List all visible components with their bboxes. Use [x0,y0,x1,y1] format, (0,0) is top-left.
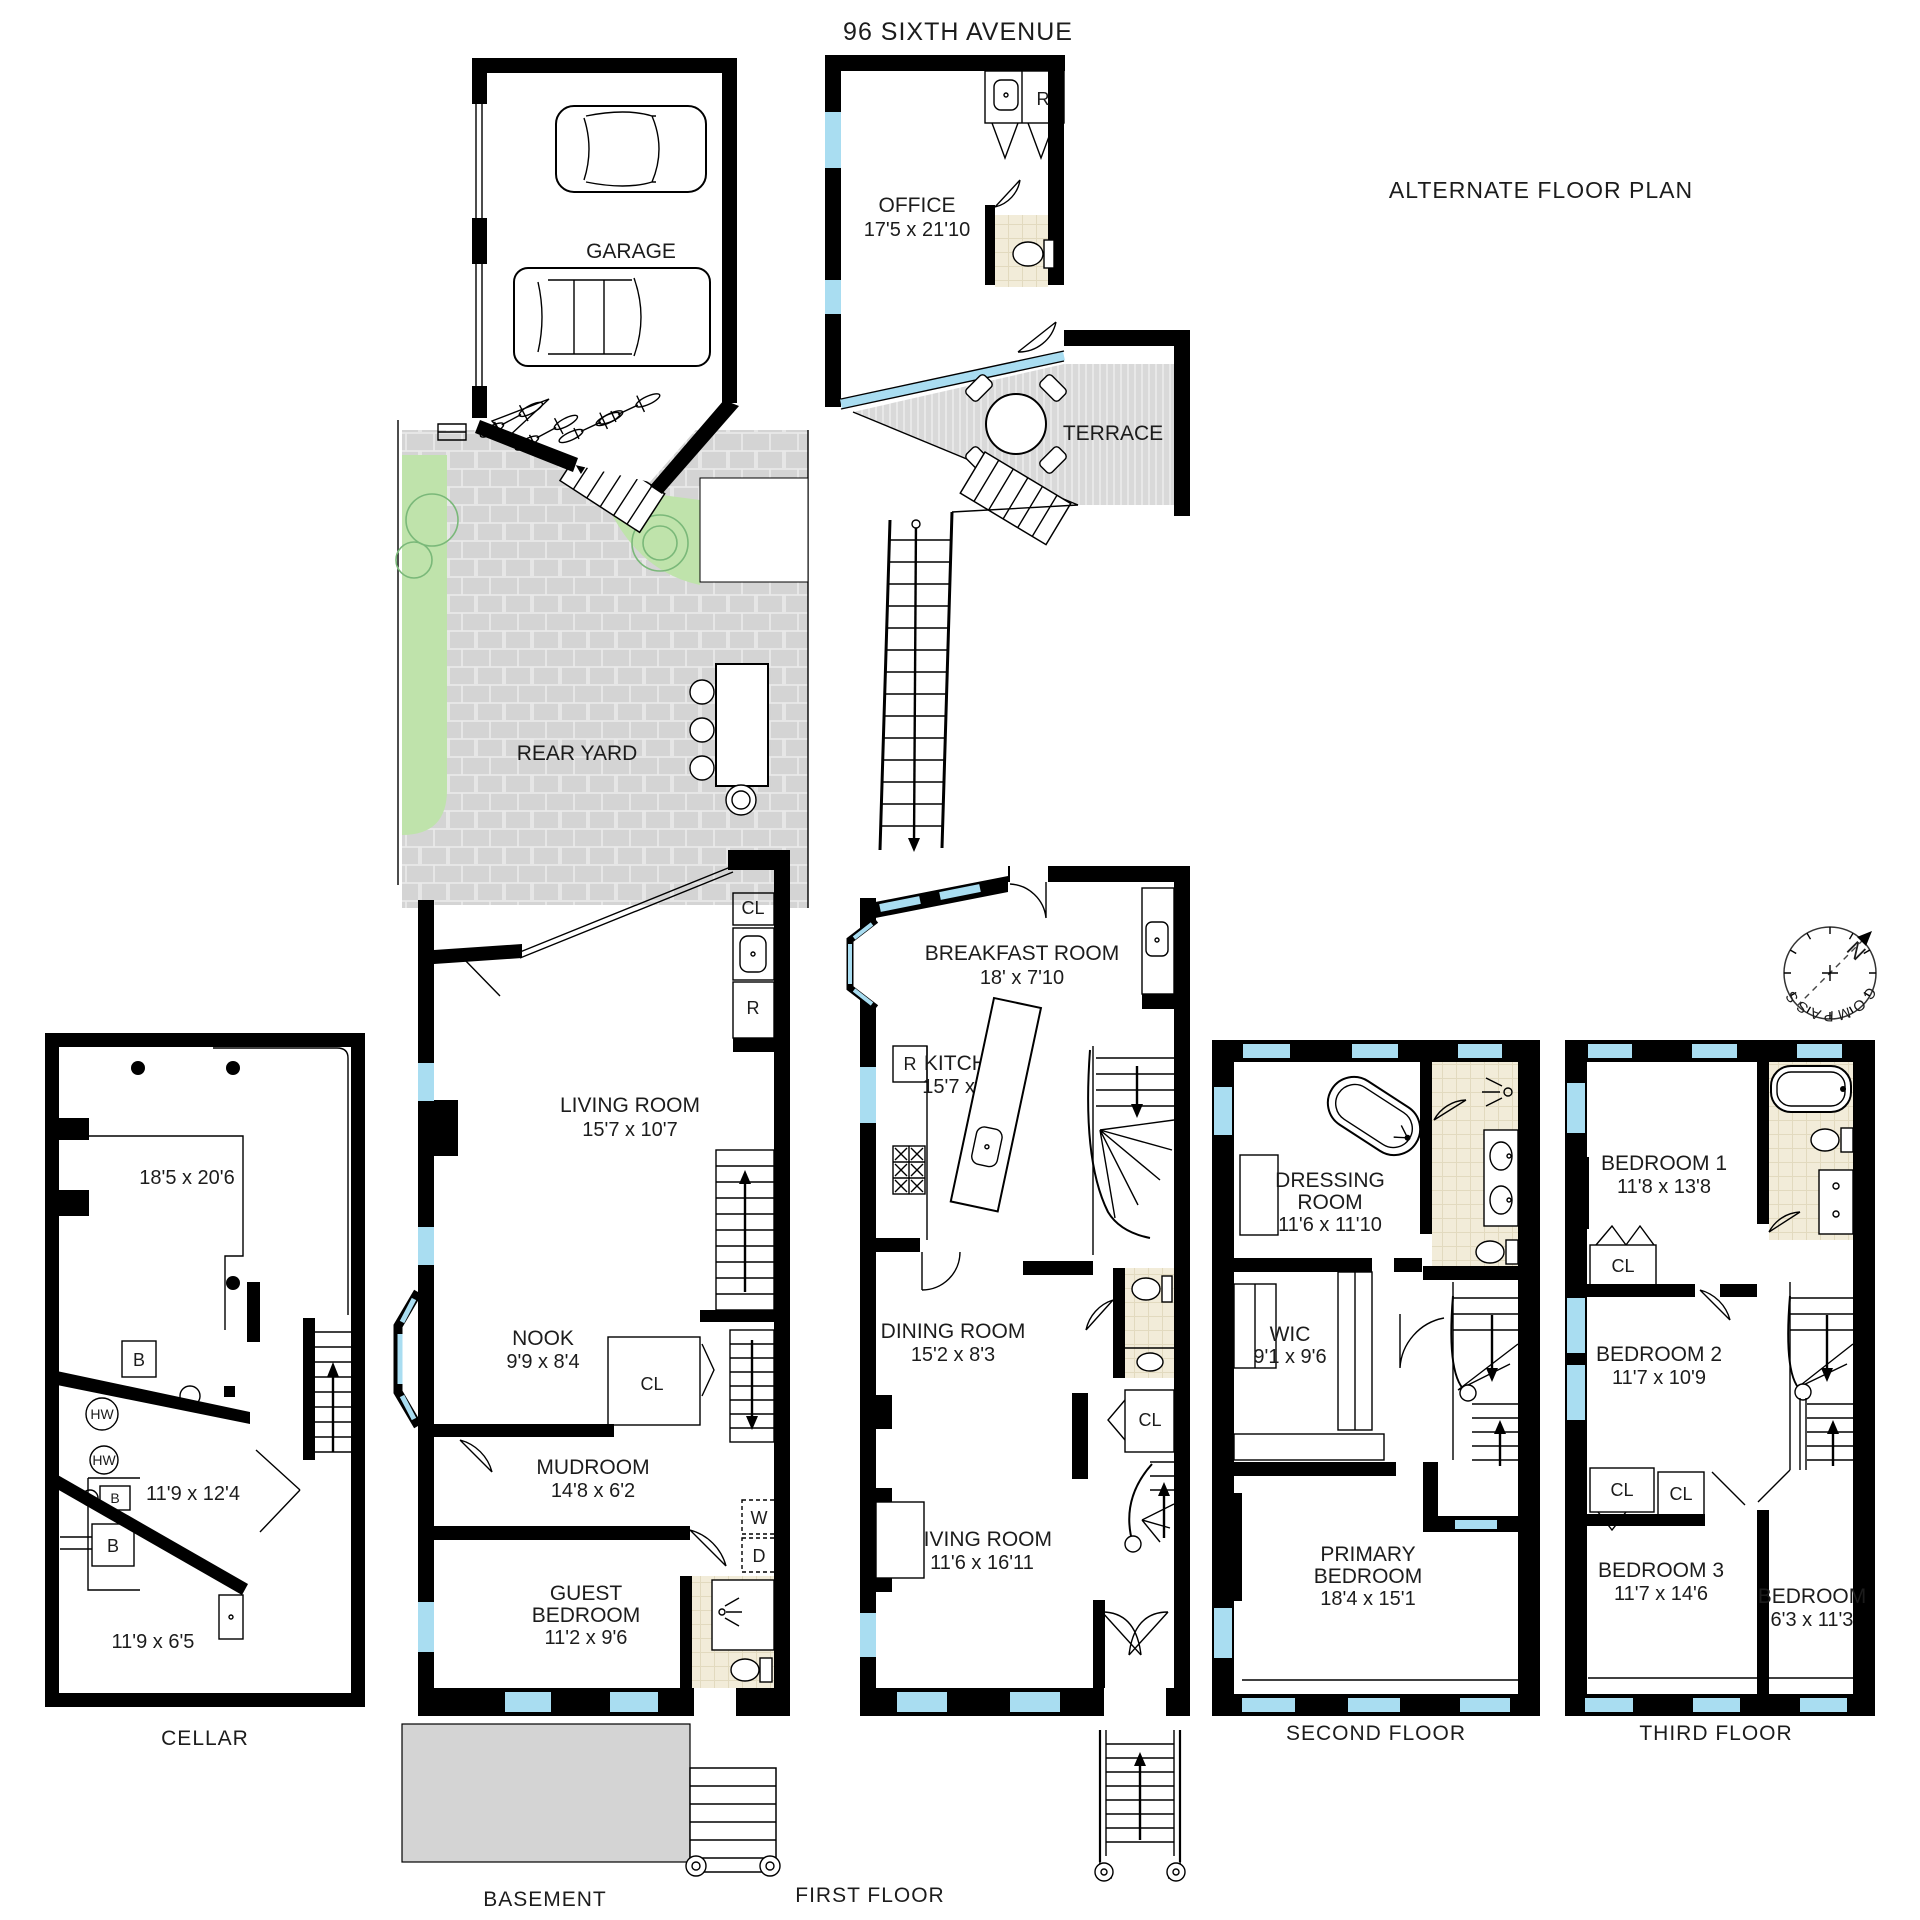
column-icon [226,1276,240,1290]
window [1455,1520,1497,1529]
toilet-icon [731,1658,772,1682]
door-opening [694,1688,736,1716]
window [610,1692,658,1712]
window [825,112,841,168]
dining-room-label: DINING ROOM [881,1320,1026,1343]
door-opening [690,1526,730,1540]
breakfast-room-label: BREAKFAST ROOM [925,942,1120,965]
washer-label: W [751,1508,768,1528]
closet-label: CL [1610,1480,1633,1500]
window [897,1692,947,1712]
window [1585,1698,1633,1712]
shower-icon [712,1580,774,1650]
rear-yard-label: REAR YARD [517,742,638,765]
window [1460,1698,1510,1712]
guest-bedroom-label: BEDROOM [532,1604,641,1627]
dresser-icon [1240,1155,1278,1235]
cellar-mid-dims: 11'9 x 12'4 [146,1483,240,1505]
window [1010,1692,1060,1712]
closet-label: CL [741,898,764,918]
column-icon [226,1061,240,1075]
third-floor-label: THIRD FLOOR [1639,1722,1792,1745]
window [1243,1044,1290,1058]
breakfast-room-dims: 18' x 7'10 [980,967,1064,989]
boiler-label: B [107,1536,119,1556]
plan-subtitle: ALTERNATE FLOOR PLAN [1389,177,1693,203]
dining-room-dims: 15'2 x 8'3 [911,1344,995,1366]
dressing-room-dims: 11'6 x 11'10 [1278,1214,1382,1236]
closet-label: CL [1669,1484,1692,1504]
cellar-storage-dims: 18'5 x 20'6 [139,1167,235,1189]
boiler-label: B [110,1490,119,1506]
sink-icon [994,80,1018,110]
window [860,1067,876,1123]
window [1797,1044,1842,1058]
refrigerator-label: R [1037,89,1050,109]
window [1588,1044,1632,1058]
door-opening [1104,1688,1166,1716]
column-icon [131,1061,145,1075]
toilet-icon [1013,240,1054,268]
second-floor-label: SECOND FLOOR [1286,1722,1466,1745]
window [505,1692,551,1712]
wic-dims: 9'1 x 9'6 [1253,1346,1326,1368]
hot-water-label: HW [90,1406,114,1422]
first-floor-label: FIRST FLOOR [795,1884,944,1907]
window [860,1613,876,1657]
bedroom2-dims: 11'7 x 10'9 [1612,1367,1706,1389]
guest-bedroom-label: GUEST [550,1582,623,1605]
office-label: OFFICE [879,194,956,217]
living-room-label: LIVING ROOM [912,1528,1052,1551]
primary-bedroom-label: BEDROOM [1314,1565,1423,1588]
wic-label: WIC [1270,1323,1311,1346]
window [1348,1698,1400,1712]
hot-water-label: HW [92,1452,116,1468]
window [1567,1083,1585,1133]
window [1800,1698,1847,1712]
bedroom4-label: BEDROOM [1758,1585,1867,1608]
door-opening [1010,866,1048,882]
basement-floor-label: BASEMENT [483,1888,607,1911]
bedroom1-dims: 11'8 x 13'8 [1617,1176,1711,1198]
window [418,1602,434,1652]
floor-plan-drawing: 96 SIXTH AVENUE ALTERNATE FLOOR PLAN N C… [0,0,1920,1920]
double-vanity-icon [1484,1130,1518,1226]
areaway [402,1724,690,1862]
bay-window [398,1292,418,1426]
window [1567,1365,1585,1420]
closet-label: CL [1138,1410,1161,1430]
cellar-front-dims: 11'9 x 6'5 [112,1631,195,1653]
refrigerator-label: R [747,998,760,1018]
bedroom3-dims: 11'7 x 14'6 [1614,1583,1708,1605]
living-room-label: LIVING ROOM [560,1094,700,1117]
living-room-dims: 15'7 x 10'7 [582,1119,678,1141]
compass-icon: N COMPASS [1781,927,1880,1024]
fireplace-icon [876,1488,924,1592]
dressing-room-label: ROOM [1297,1191,1362,1214]
window [1458,1044,1502,1058]
terrace-label: TERRACE [1063,422,1163,445]
cellar-floor-label: CELLAR [161,1727,249,1750]
yard-walkway [700,478,808,582]
office-dims: 17'5 x 21'10 [864,219,971,241]
primary-bedroom-label: PRIMARY [1320,1543,1415,1566]
toilet-icon [1811,1128,1853,1152]
bay-window [850,920,876,1008]
window [1692,1044,1737,1058]
mudroom-label: MUDROOM [536,1456,649,1479]
window [1242,1698,1295,1712]
window [1352,1044,1398,1058]
car-icon [514,268,710,366]
garage-label: GARAGE [586,240,676,263]
bedroom3-label: BEDROOM 3 [1598,1559,1724,1582]
window [1567,1298,1585,1353]
living-room-dims: 11'6 x 16'11 [930,1552,1034,1574]
vanity-icon [1819,1170,1853,1234]
window [825,280,841,314]
window [1214,1608,1232,1658]
bedroom2-label: BEDROOM 2 [1596,1343,1722,1366]
bedroom1-label: BEDROOM 1 [1601,1152,1727,1175]
toilet-icon [1132,1276,1172,1302]
floor-plan-page: 96 SIXTH AVENUE ALTERNATE FLOOR PLAN N C… [0,0,1920,1920]
window [1214,1087,1232,1135]
entry-stairs-icon [686,1768,780,1876]
sink-icon [1142,888,1174,994]
nook-dims: 9'9 x 8'4 [506,1351,579,1373]
mudroom-dims: 14'8 x 6'2 [551,1480,635,1502]
window [418,1227,434,1265]
window [418,1063,434,1101]
dressing-room-label: DRESSING [1275,1169,1385,1192]
primary-bedroom-dims: 18'4 x 15'1 [1320,1588,1416,1610]
window [1693,1698,1740,1712]
bedroom4-dims: 6'3 x 11'3 [1771,1609,1854,1631]
refrigerator-label: R [904,1054,917,1074]
nook-label: NOOK [512,1327,574,1350]
page-title: 96 SIXTH AVENUE [843,18,1073,46]
bathtub-icon [1771,1066,1851,1112]
toilet-icon [1476,1240,1518,1264]
guest-bedroom-dims: 11'2 x 9'6 [545,1627,628,1649]
closet-label: CL [1611,1256,1634,1276]
dryer-label: D [753,1546,766,1566]
car-icon [556,106,706,192]
boiler-label: B [133,1350,145,1370]
planting-bed [402,455,447,835]
closet-label: CL [640,1374,663,1394]
